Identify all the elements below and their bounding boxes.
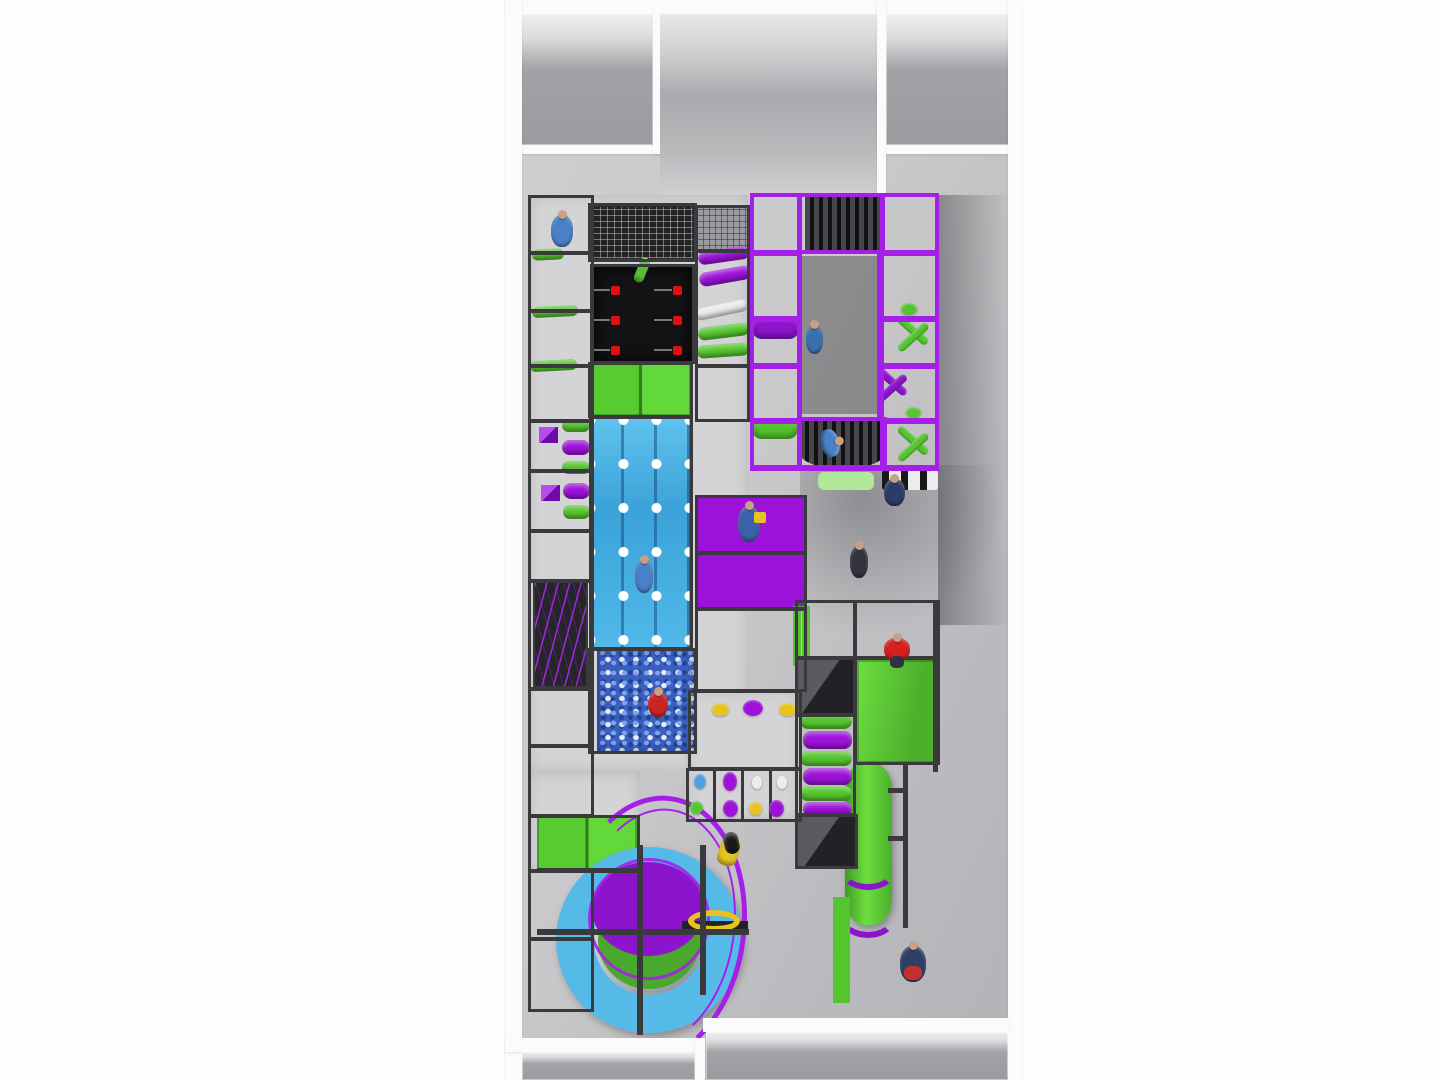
wall-below-room-right — [886, 145, 1010, 154]
pframe-cell-D3 — [880, 365, 939, 422]
person-bottom-jacket — [904, 966, 922, 980]
flag-yellow — [754, 512, 766, 523]
person-on-slide — [635, 560, 653, 593]
frame-cell-M1 — [588, 203, 697, 262]
pframe-cell-C1 — [750, 318, 802, 367]
frame-cell-L6 — [528, 470, 594, 532]
pframe-cell-A2 — [797, 193, 885, 254]
scene-container — [0, 0, 1440, 1080]
stepper-purple-1 — [743, 700, 763, 716]
stepper-yellow-2 — [779, 703, 796, 716]
wall-bottom-left-band — [505, 1038, 700, 1052]
pframe-cell-D1 — [750, 365, 802, 422]
frame-lower-C — [854, 657, 940, 765]
wall-right — [1008, 0, 1022, 1080]
frame-cell-L2 — [528, 252, 594, 312]
frame-cell-L4 — [528, 365, 594, 422]
dots-divider-2 — [741, 770, 744, 820]
frame-cell-L12 — [528, 870, 594, 940]
wall-left — [505, 0, 522, 1080]
frame-cell-L9 — [528, 688, 594, 747]
pframe-cell-E3 — [880, 420, 939, 470]
room-top-left — [521, 14, 653, 145]
frame-lower-F — [795, 814, 858, 869]
frame-lower-D — [795, 657, 856, 716]
frame-cell-L8 — [528, 580, 594, 690]
frame-cell-L10 — [528, 745, 594, 817]
frame-cell-L11 — [528, 815, 640, 872]
wall-bottom-right-band — [703, 1018, 1009, 1032]
frame-cell-M3 — [588, 362, 693, 418]
pframe-bench-beam — [750, 465, 939, 471]
frame-stub-2 — [888, 836, 908, 841]
cell-dot-white-2 — [777, 776, 787, 789]
cell-dot-purple-1 — [723, 772, 737, 791]
pframe-rail-mid-left — [797, 252, 802, 419]
person-on-floor-middle — [850, 546, 868, 578]
wall-divider-middle — [877, 0, 886, 195]
cell-dot-purple-2 — [723, 800, 738, 817]
wall-below-room-left — [521, 145, 660, 154]
wall-top-band — [505, 0, 1010, 14]
frame-cell-L5 — [528, 420, 594, 472]
pframe-cell-A1 — [750, 193, 802, 254]
frame-cell-R1 — [695, 205, 750, 252]
frame-purple-panels-3 — [695, 608, 807, 692]
frame-cell-L7 — [528, 530, 594, 582]
pframe-cell-B3 — [880, 252, 939, 320]
green-pillar — [833, 897, 850, 1003]
pframe-rail-mid-right — [877, 252, 882, 419]
dots-divider-1 — [713, 770, 716, 820]
frame-cell-R2 — [695, 250, 750, 367]
cell-dot-blue — [694, 774, 706, 789]
frame-cell-L3 — [528, 310, 594, 367]
frame-lower-E — [795, 714, 856, 816]
frame-cell-M2 — [590, 264, 695, 364]
person-red-hat-body — [890, 656, 904, 668]
pframe-cell-C3 — [880, 318, 939, 367]
person-at-bench — [884, 479, 905, 506]
cell-dot-purple-3 — [769, 800, 784, 817]
person-in-ball-pit — [648, 692, 668, 717]
room-bottom-right — [706, 1032, 1008, 1080]
cell-dot-yellow — [749, 802, 762, 815]
person-on-top-left-deck — [551, 215, 573, 247]
bench-green-pads — [818, 472, 874, 490]
frame-stub-1 — [888, 788, 908, 793]
room-top-middle — [660, 14, 877, 195]
wall-bottom-divider — [695, 1038, 705, 1080]
room-bottom-left — [522, 1052, 695, 1080]
frame-cell-M4 — [589, 416, 693, 650]
frame-post-right-1 — [933, 600, 938, 772]
cell-dot-white-1 — [752, 776, 762, 789]
frame-beam-vertical-2 — [700, 845, 706, 995]
frame-cell-M5 — [588, 648, 697, 754]
pframe-cell-B1 — [750, 252, 802, 320]
frame-cell-R3 — [695, 365, 750, 422]
person-in-purple-structure — [806, 325, 823, 354]
cell-dot-green — [690, 801, 703, 814]
stepper-yellow-1 — [712, 703, 729, 716]
pframe-cell-E1 — [750, 420, 802, 470]
frame-lower-A — [795, 600, 856, 659]
frame-beam-vertical-1 — [637, 845, 643, 1035]
frame-cell-L13 — [528, 938, 594, 1012]
playground-top-view-render — [0, 0, 1440, 1080]
frame-purple-panels-2 — [695, 552, 807, 610]
room-top-right — [886, 14, 1010, 145]
pframe-cell-A3 — [880, 193, 939, 254]
